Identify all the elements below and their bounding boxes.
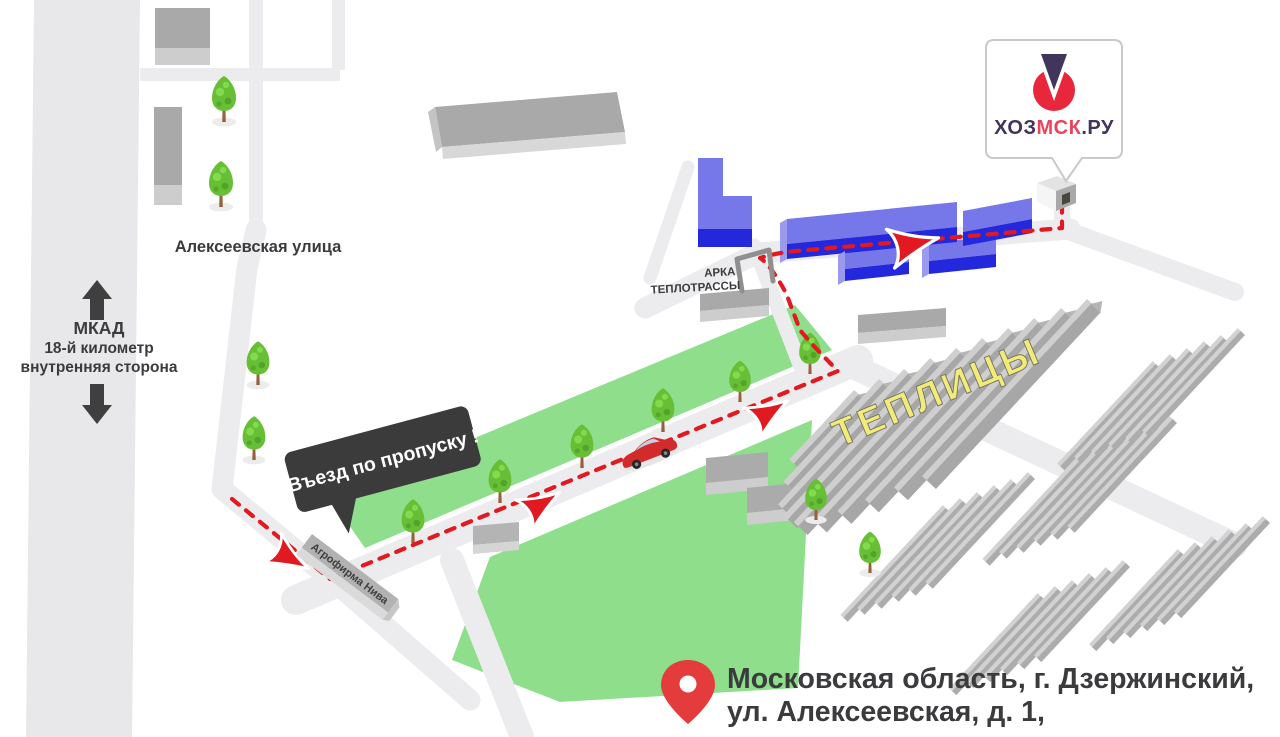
mkad-label: МКАД (73, 318, 125, 338)
tree-icon (247, 341, 270, 389)
destination-building (1037, 176, 1076, 211)
address-line1: Московская область, г. Дзержинский, (727, 663, 1254, 695)
mkad-label-line2: 18-й километр (44, 340, 153, 357)
tree-icon (212, 76, 236, 127)
mkad-label-line3: внутренняя сторона (21, 359, 178, 376)
arch-label-line1: АРКА (704, 266, 736, 280)
address-block: Московская область, г. Дзержинский, ул. … (661, 660, 1254, 728)
logo-text: ХОЗМСК.РУ (994, 117, 1114, 139)
tree-icon (859, 532, 881, 577)
street-label: Алексеевская улица (175, 238, 342, 256)
northeast-road (1066, 230, 1235, 292)
tree-icon (209, 161, 233, 212)
driving-directions-map: Алексеевская улица МКАД 18-й километр вн… (0, 0, 1280, 737)
location-pin-icon (661, 660, 715, 724)
upper-left-road (650, 167, 688, 278)
tree-icon (243, 416, 266, 464)
logo-callout: ХОЗМСК.РУ (986, 40, 1122, 181)
address-line2: ул. Алексеевская, д. 1, (727, 696, 1045, 728)
